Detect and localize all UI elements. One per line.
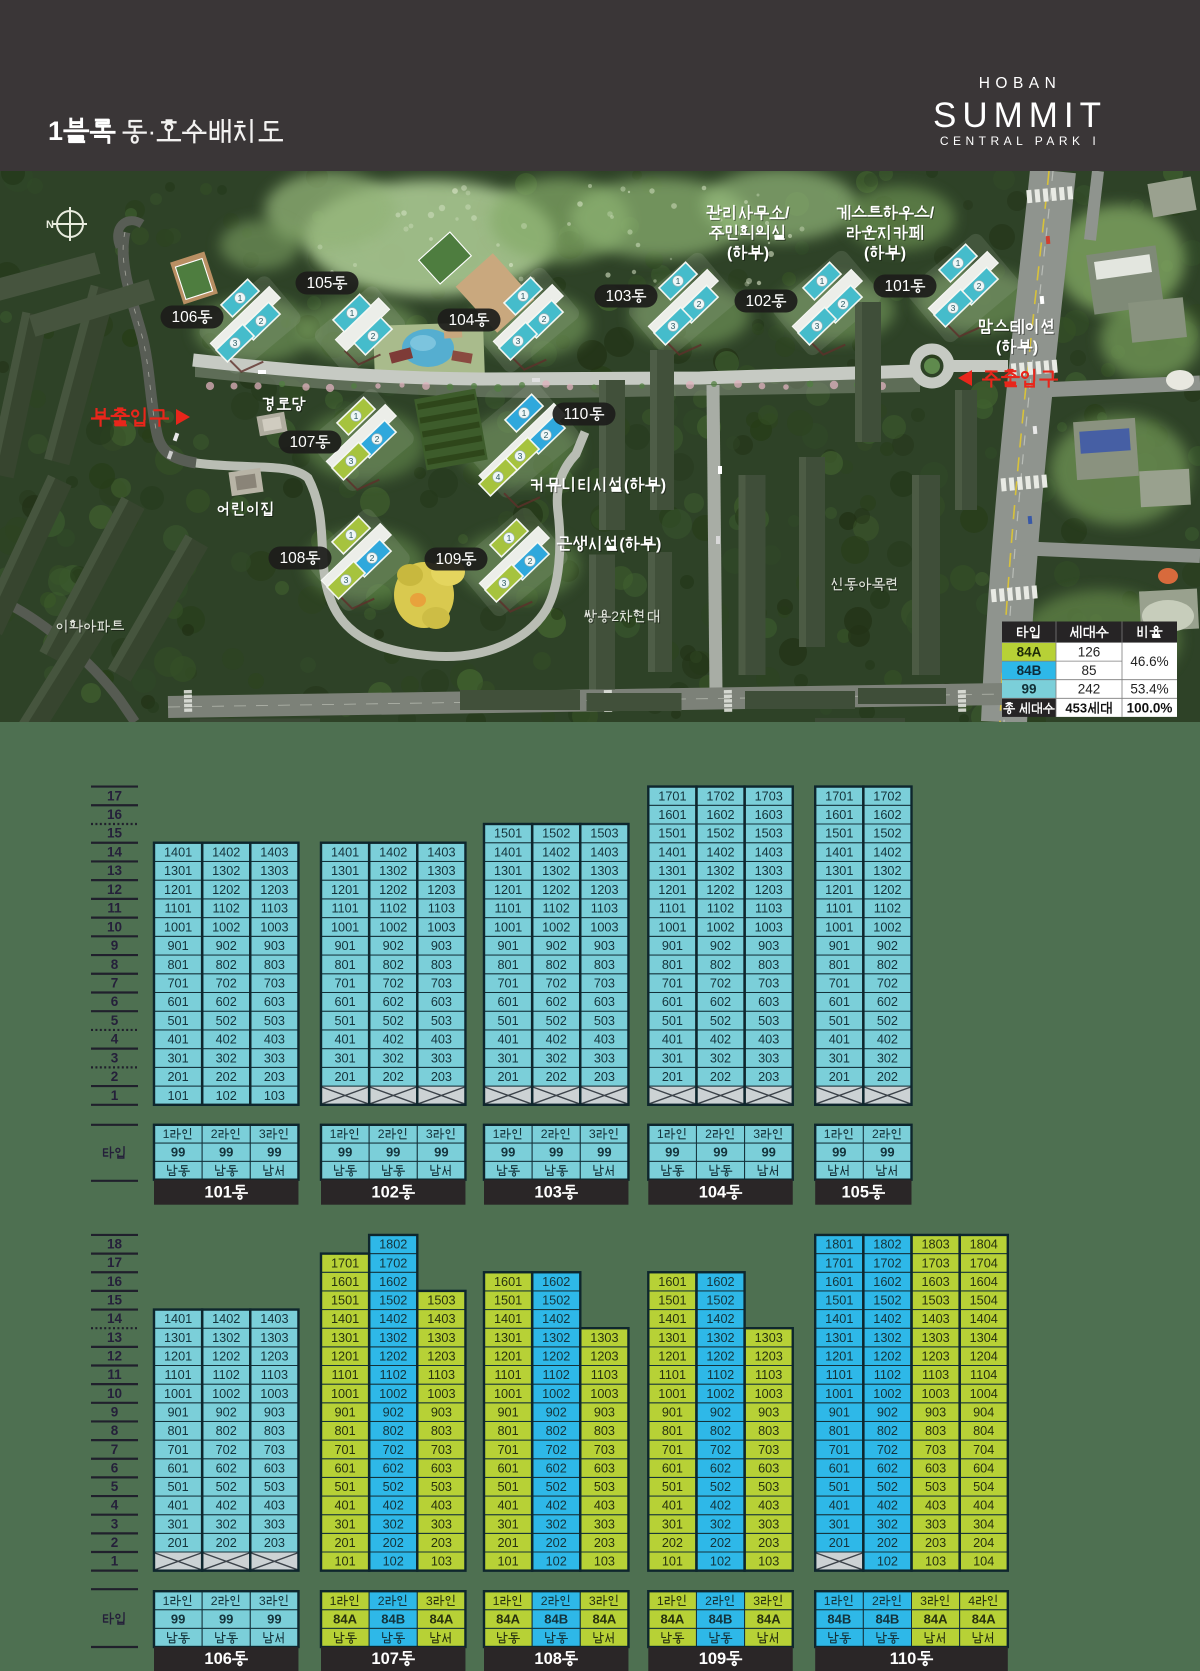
svg-text:99: 99 [219,1144,233,1159]
svg-text:803: 803 [431,1424,452,1438]
svg-text:803: 803 [594,1424,615,1438]
svg-text:703: 703 [925,1443,946,1457]
svg-text:802: 802 [216,1424,237,1438]
svg-text:1301: 1301 [825,864,853,878]
svg-text:603: 603 [594,1461,615,1475]
svg-text:1601: 1601 [825,1275,853,1289]
svg-text:1201: 1201 [164,1350,192,1364]
svg-text:1003: 1003 [755,920,783,934]
svg-text:9: 9 [111,1405,119,1420]
svg-text:1303: 1303 [755,864,783,878]
svg-text:8: 8 [111,1423,119,1438]
svg-text:901: 901 [168,1406,189,1420]
svg-text:/: / [785,205,790,222]
svg-text:(: ( [727,245,733,262]
svg-text:105: 105 [307,275,333,292]
svg-text:1002: 1002 [706,1387,734,1401]
svg-text:703: 703 [758,1443,779,1457]
svg-text:3: 3 [589,1127,596,1141]
svg-text:1402: 1402 [873,845,901,859]
svg-text:503: 503 [758,1014,779,1028]
svg-text:902: 902 [710,939,731,953]
svg-text:403: 403 [431,1499,452,1513]
svg-text:84A: 84A [333,1611,357,1626]
svg-text:1604: 1604 [970,1275,998,1289]
svg-text:303: 303 [925,1517,946,1531]
svg-text:402: 402 [710,1033,731,1047]
svg-text:1103: 1103 [755,902,782,916]
svg-text:202: 202 [877,1536,898,1550]
svg-text:2: 2 [841,299,846,309]
svg-text:1103: 1103 [922,1368,949,1382]
svg-text:201: 201 [498,1536,519,1550]
svg-text:902: 902 [710,1406,731,1420]
svg-text:301: 301 [498,1051,519,1065]
svg-text:1: 1 [522,408,527,418]
svg-text:53.4%: 53.4% [1130,682,1168,697]
svg-text:603: 603 [594,995,615,1009]
svg-text:99: 99 [665,1144,679,1159]
svg-text:110: 110 [564,406,589,423]
svg-text:242: 242 [1078,682,1101,697]
svg-text:1404: 1404 [970,1312,998,1326]
svg-text:3: 3 [426,1127,433,1141]
svg-text:103: 103 [925,1555,946,1569]
svg-text:502: 502 [877,1480,898,1494]
svg-text:1601: 1601 [658,808,686,822]
svg-text:504: 504 [973,1480,994,1494]
svg-text:1202: 1202 [379,1350,407,1364]
svg-text:501: 501 [829,1014,850,1028]
svg-text:1302: 1302 [212,864,240,878]
svg-text:402: 402 [216,1033,237,1047]
svg-text:402: 402 [216,1499,237,1513]
svg-text:501: 501 [168,1014,189,1028]
svg-text:401: 401 [168,1499,189,1513]
svg-text:302: 302 [383,1517,404,1531]
svg-text:402: 402 [877,1499,898,1513]
svg-text:1: 1 [238,293,243,303]
svg-text:901: 901 [335,1406,356,1420]
svg-text:801: 801 [335,958,356,972]
svg-text:403: 403 [594,1499,615,1513]
svg-text:901: 901 [829,1406,850,1420]
svg-text:1101: 1101 [826,902,853,916]
svg-text:2: 2 [378,1127,385,1141]
svg-text:302: 302 [877,1051,898,1065]
svg-text:601: 601 [335,995,356,1009]
svg-text:84A: 84A [592,1611,616,1626]
svg-text:N: N [46,219,54,231]
svg-text:301: 301 [662,1051,683,1065]
svg-text:3: 3 [259,1594,266,1608]
svg-text:901: 901 [498,939,519,953]
svg-text:602: 602 [216,1461,237,1475]
svg-text:2: 2 [872,1127,879,1141]
svg-text:301: 301 [168,1517,189,1531]
svg-text:1002: 1002 [379,920,407,934]
svg-text:2: 2 [111,1069,119,1084]
svg-text:1: 1 [676,276,681,286]
svg-text:1401: 1401 [331,845,359,859]
svg-text:1: 1 [820,276,825,286]
svg-text:1001: 1001 [658,920,686,934]
svg-text:403: 403 [925,1499,946,1513]
svg-text:701: 701 [498,977,519,991]
svg-text:203: 203 [758,1536,779,1550]
svg-text:1102: 1102 [707,1368,734,1382]
svg-text:201: 201 [168,1070,189,1084]
svg-text:2: 2 [611,608,619,624]
svg-text:9: 9 [111,938,119,953]
svg-text:102: 102 [216,1089,237,1103]
svg-text:1202: 1202 [873,1350,901,1364]
svg-text:99: 99 [171,1611,185,1626]
svg-text:1201: 1201 [164,883,192,897]
svg-text:701: 701 [335,977,356,991]
svg-text:1502: 1502 [706,827,734,841]
svg-text:601: 601 [335,1461,356,1475]
svg-text:403: 403 [758,1033,779,1047]
svg-text:402: 402 [546,1499,567,1513]
svg-text:801: 801 [829,1424,850,1438]
svg-text:1401: 1401 [164,845,192,859]
svg-text:801: 801 [662,1424,683,1438]
svg-text:503: 503 [431,1014,452,1028]
svg-text:803: 803 [758,1424,779,1438]
svg-text:203: 203 [925,1536,946,1550]
svg-text:2: 2 [111,1535,119,1550]
svg-text:4: 4 [968,1594,975,1608]
svg-text:1: 1 [330,1594,337,1608]
svg-text:1001: 1001 [494,1387,522,1401]
svg-text:4: 4 [111,1498,119,1513]
svg-text:1302: 1302 [873,1331,901,1345]
svg-text:901: 901 [168,939,189,953]
svg-text:1401: 1401 [825,1312,853,1326]
svg-text:701: 701 [662,977,683,991]
svg-text:902: 902 [546,1406,567,1420]
svg-text:1301: 1301 [331,864,359,878]
svg-text:1301: 1301 [331,1331,359,1345]
svg-text:1202: 1202 [212,883,240,897]
svg-text:803: 803 [758,958,779,972]
svg-text:202: 202 [546,1070,567,1084]
svg-text:(: ( [864,245,870,262]
svg-text:1203: 1203 [590,1350,618,1364]
svg-text:1202: 1202 [542,883,570,897]
svg-text:1301: 1301 [658,864,686,878]
svg-text:301: 301 [829,1051,850,1065]
svg-text:1104: 1104 [970,1368,997,1382]
svg-text:7: 7 [111,976,119,991]
svg-text:1303: 1303 [427,864,455,878]
svg-text:602: 602 [383,995,404,1009]
svg-text:402: 402 [546,1033,567,1047]
svg-text:17: 17 [107,788,122,803]
svg-text:401: 401 [829,1499,850,1513]
svg-text:903: 903 [758,939,779,953]
svg-text:1402: 1402 [212,1312,240,1326]
svg-text:1602: 1602 [873,808,901,822]
svg-text:84B: 84B [544,1611,568,1626]
svg-text:102: 102 [546,1555,567,1569]
svg-text:503: 503 [758,1480,779,1494]
svg-text:1303: 1303 [590,1331,618,1345]
svg-text:18: 18 [107,1237,123,1252]
svg-text:1301: 1301 [164,864,192,878]
svg-text:101: 101 [204,1184,232,1202]
svg-text:126: 126 [1078,645,1101,660]
svg-text:703: 703 [264,977,285,991]
svg-text:602: 602 [383,1461,404,1475]
svg-text:603: 603 [431,995,452,1009]
svg-text:7: 7 [111,1442,119,1457]
svg-text:1501: 1501 [331,1294,359,1308]
svg-text:503: 503 [264,1480,285,1494]
svg-text:203: 203 [264,1070,285,1084]
svg-text:402: 402 [383,1499,404,1513]
svg-text:802: 802 [877,1424,898,1438]
svg-text:1802: 1802 [379,1238,407,1252]
svg-text:101: 101 [662,1555,683,1569]
svg-text:601: 601 [168,1461,189,1475]
svg-text:902: 902 [216,1406,237,1420]
svg-text:903: 903 [594,939,615,953]
svg-text:1001: 1001 [331,1387,359,1401]
svg-text:2: 2 [211,1127,218,1141]
svg-text:1801: 1801 [825,1238,853,1252]
svg-text:702: 702 [546,1443,567,1457]
svg-text:10: 10 [107,919,122,934]
svg-text:1: 1 [111,1088,119,1103]
svg-text:3: 3 [815,321,820,331]
svg-text:801: 801 [168,958,189,972]
svg-text:1103: 1103 [261,1368,288,1382]
svg-text:1101: 1101 [659,1368,686,1382]
svg-text:3: 3 [516,336,521,346]
svg-text:102: 102 [710,1555,731,1569]
svg-text:1503: 1503 [755,827,783,841]
svg-text:202: 202 [216,1070,237,1084]
svg-text:2: 2 [705,1127,712,1141]
svg-text:1203: 1203 [427,1350,455,1364]
svg-text:1101: 1101 [494,902,521,916]
svg-text:1502: 1502 [706,1294,734,1308]
svg-text:1503: 1503 [590,827,618,841]
svg-text:12: 12 [107,1349,122,1364]
svg-text:1703: 1703 [755,789,783,803]
svg-text:301: 301 [335,1051,356,1065]
svg-text:5: 5 [111,1013,119,1028]
svg-text:1601: 1601 [331,1275,359,1289]
svg-text:99: 99 [267,1611,281,1626]
svg-text:99: 99 [713,1144,727,1159]
svg-text:10: 10 [107,1386,122,1401]
svg-text:3: 3 [589,1594,596,1608]
svg-text:701: 701 [498,1443,519,1457]
svg-text:1501: 1501 [658,827,686,841]
svg-text:1703: 1703 [921,1256,949,1270]
svg-text:107: 107 [371,1650,399,1668]
svg-text:501: 501 [498,1014,519,1028]
svg-text:1401: 1401 [494,845,522,859]
svg-text:203: 203 [594,1070,615,1084]
svg-text:1201: 1201 [331,883,359,897]
svg-text:1203: 1203 [590,883,618,897]
svg-text:109: 109 [436,551,462,568]
svg-text:703: 703 [758,977,779,991]
svg-text:1003: 1003 [427,920,455,934]
svg-text:99: 99 [761,1144,775,1159]
svg-text:201: 201 [498,1070,519,1084]
svg-text:803: 803 [264,958,285,972]
svg-text:802: 802 [710,1424,731,1438]
svg-text:903: 903 [431,1406,452,1420]
svg-text:501: 501 [335,1014,356,1028]
svg-text:99: 99 [597,1144,611,1159]
svg-text:2: 2 [872,1594,879,1608]
svg-text:303: 303 [264,1517,285,1531]
svg-text:501: 501 [498,1480,519,1494]
svg-text:301: 301 [168,1051,189,1065]
svg-text:1302: 1302 [379,1331,407,1345]
svg-text:1603: 1603 [921,1275,949,1289]
svg-text:302: 302 [710,1517,731,1531]
svg-text:1602: 1602 [379,1275,407,1289]
svg-text:403: 403 [264,1499,285,1513]
svg-text:702: 702 [383,977,404,991]
svg-text:): ) [901,245,906,262]
svg-text:802: 802 [877,958,898,972]
svg-text:103: 103 [431,1555,452,1569]
svg-text:1002: 1002 [212,1387,240,1401]
svg-text:102: 102 [746,293,772,310]
svg-text:1504: 1504 [970,1294,998,1308]
svg-text:901: 901 [662,939,683,953]
svg-text:203: 203 [431,1070,452,1084]
svg-text:1202: 1202 [212,1350,240,1364]
svg-text:1302: 1302 [212,1331,240,1345]
svg-text:901: 901 [662,1406,683,1420]
svg-text:3: 3 [951,303,956,313]
svg-text:1202: 1202 [706,883,734,897]
svg-text:1003: 1003 [427,1387,455,1401]
svg-text:1: 1 [354,411,359,421]
svg-text:11: 11 [107,901,122,916]
svg-text:701: 701 [829,977,850,991]
svg-text:402: 402 [710,1499,731,1513]
svg-text:103: 103 [594,1555,615,1569]
svg-text:201: 201 [829,1536,850,1550]
svg-text:204: 204 [973,1536,994,1550]
svg-text:302: 302 [546,1517,567,1531]
svg-text:1301: 1301 [494,864,522,878]
svg-text:103: 103 [606,288,632,305]
svg-text:903: 903 [594,1406,615,1420]
svg-text:1101: 1101 [164,1368,191,1382]
svg-text:403: 403 [594,1033,615,1047]
svg-text:1: 1 [330,1127,337,1141]
svg-text:1101: 1101 [826,1368,853,1382]
svg-text:1002: 1002 [706,920,734,934]
svg-text:84A: 84A [496,1611,520,1626]
svg-text:502: 502 [383,1480,404,1494]
svg-text:1: 1 [163,1127,170,1141]
svg-text:1203: 1203 [755,883,783,897]
svg-text:109: 109 [699,1650,727,1668]
svg-text:1202: 1202 [706,1350,734,1364]
svg-text:1: 1 [163,1594,170,1608]
svg-text:903: 903 [264,1406,285,1420]
svg-text:401: 401 [335,1033,356,1047]
svg-text:803: 803 [925,1424,946,1438]
svg-text:1102: 1102 [380,902,407,916]
svg-text:601: 601 [498,1461,519,1475]
svg-text:1102: 1102 [874,902,901,916]
svg-text:501: 501 [168,1480,189,1494]
svg-text:1001: 1001 [164,1387,192,1401]
svg-text:601: 601 [829,1461,850,1475]
svg-text:403: 403 [264,1033,285,1047]
svg-text:203: 203 [594,1536,615,1550]
svg-text:12: 12 [107,882,122,897]
svg-text:903: 903 [758,1406,779,1420]
svg-text:3: 3 [753,1127,760,1141]
svg-text:701: 701 [335,1443,356,1457]
svg-text:401: 401 [829,1033,850,1047]
svg-text:(: ( [996,339,1002,356]
svg-text:901: 901 [498,1406,519,1420]
svg-text:503: 503 [594,1480,615,1494]
svg-text:201: 201 [168,1536,189,1550]
svg-text:1: 1 [507,533,512,543]
svg-text:902: 902 [877,1406,898,1420]
svg-text:302: 302 [383,1051,404,1065]
svg-text:1001: 1001 [825,920,853,934]
svg-text:8: 8 [111,957,119,972]
svg-text:601: 601 [829,995,850,1009]
svg-text:1502: 1502 [873,1294,901,1308]
svg-text:603: 603 [264,1461,285,1475]
svg-text:1: 1 [493,1127,500,1141]
svg-text:1303: 1303 [755,1331,783,1345]
svg-text:503: 503 [925,1480,946,1494]
svg-text:503: 503 [594,1014,615,1028]
svg-text:1203: 1203 [427,883,455,897]
svg-text:302: 302 [216,1051,237,1065]
svg-text:801: 801 [335,1424,356,1438]
svg-text:1201: 1201 [658,883,686,897]
svg-text:15: 15 [107,1293,123,1308]
svg-text:106: 106 [204,1650,232,1668]
svg-text:1301: 1301 [494,1331,522,1345]
svg-text:202: 202 [662,1536,683,1550]
svg-text:1401: 1401 [164,1312,192,1326]
svg-text:1701: 1701 [658,789,686,803]
svg-text:1003: 1003 [260,1387,288,1401]
svg-text:1004: 1004 [970,1387,998,1401]
svg-text:601: 601 [662,995,683,1009]
svg-text:99: 99 [171,1144,185,1159]
svg-text:901: 901 [335,939,356,953]
svg-text:803: 803 [594,958,615,972]
svg-text:1401: 1401 [658,845,686,859]
svg-text:1201: 1201 [658,1350,686,1364]
svg-text:1403: 1403 [921,1312,949,1326]
svg-text:902: 902 [877,939,898,953]
svg-text:1401: 1401 [494,1312,522,1326]
